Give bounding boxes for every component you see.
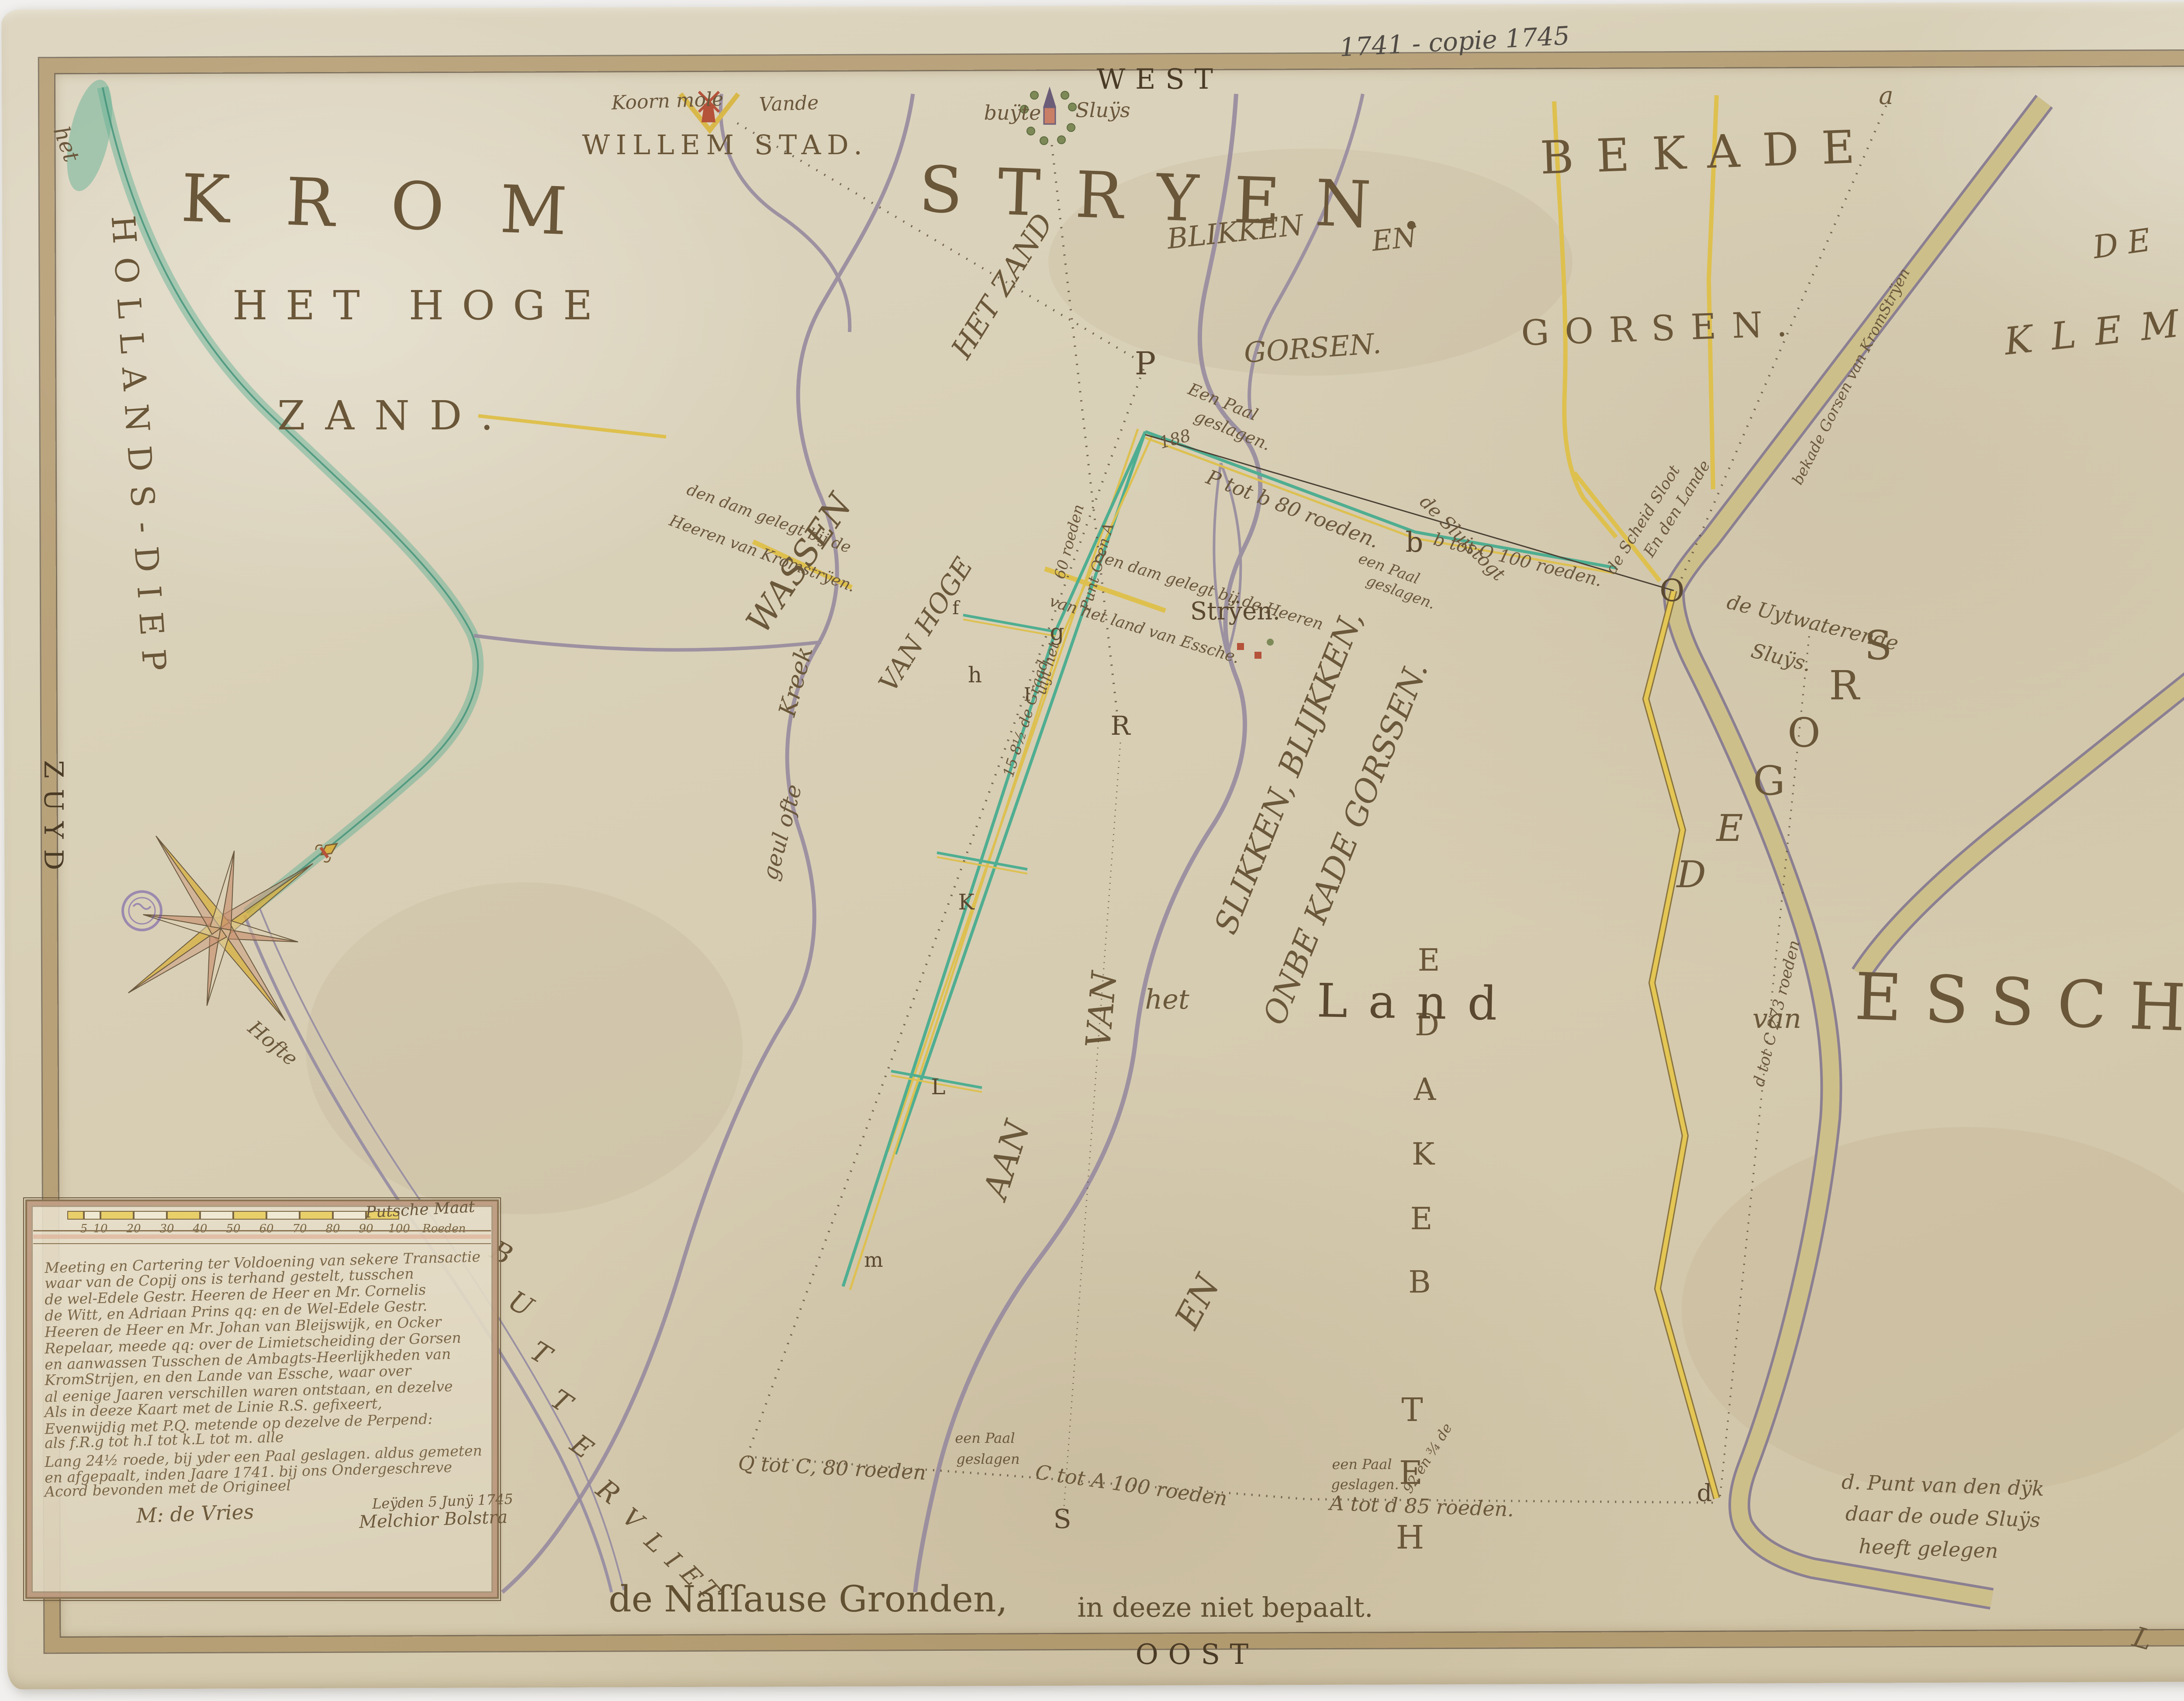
- map-label: U: [504, 1286, 537, 1321]
- map-label: ONBE KADE GORSSEN.: [1258, 657, 1433, 1029]
- map-label: in deeze niet bepaalt.: [1077, 1594, 1373, 1621]
- map-label: HOLLANDS-DIEP: [107, 214, 172, 685]
- map-label: Sluÿs.: [1749, 640, 1813, 675]
- map-label: EN: [1170, 1269, 1226, 1334]
- scale-bar-segment: [200, 1211, 233, 1220]
- map-label: ESSCHE.: [1854, 964, 2184, 1045]
- map-label: E: [1417, 945, 1440, 975]
- map-label: Hofte: [245, 1017, 301, 1069]
- map-label: A: [1414, 1074, 1436, 1105]
- map-label: DE: [2091, 223, 2162, 263]
- map-label: geul ofte: [759, 782, 805, 882]
- map-label: GORSEN.: [1243, 330, 1382, 367]
- map-label: een Paal: [955, 1431, 1015, 1445]
- map-label: T: [546, 1385, 577, 1418]
- map-label: Koorn mole: [611, 90, 724, 113]
- map-label: HET HOGE: [232, 286, 611, 326]
- scale-tick-label: 70: [292, 1222, 307, 1235]
- map-label: I: [661, 1548, 685, 1573]
- scale-tick-label: 40: [193, 1222, 207, 1235]
- map-label: R: [592, 1475, 625, 1509]
- map-label: R: [1829, 666, 1859, 706]
- scale-tick-label: 5: [80, 1222, 88, 1235]
- scale-bar-segment: [84, 1211, 100, 1220]
- map-label: b tot O 100 roeden.: [1432, 531, 1604, 590]
- map-label: KROM: [180, 166, 624, 246]
- map-label: KLEM.: [2003, 300, 2184, 360]
- map-label: 60 roeden: [1052, 503, 1086, 581]
- map-label: EN: [1371, 223, 1418, 256]
- map-label: L: [640, 1528, 668, 1557]
- map-label: VAN HOGE: [875, 553, 978, 696]
- map-label: de Naſſause Gronden,: [608, 1582, 1008, 1618]
- scale-tick-label: 20: [126, 1222, 141, 1235]
- map-label: Vande: [759, 93, 819, 115]
- map-label: Q tot C, 80 roeden: [738, 1453, 927, 1483]
- map-label: g: [1050, 621, 1064, 644]
- map-label: WEST: [1097, 66, 1223, 93]
- map-label: Land: [1317, 978, 1518, 1027]
- map-label: ZAND.: [277, 396, 514, 436]
- scale-title: Putsche Maat: [365, 1199, 475, 1220]
- map-label: h: [968, 664, 982, 686]
- map-label: K: [958, 891, 974, 913]
- scale-tick-label: 60: [259, 1222, 273, 1235]
- map-label: A tot d 85 roeden.: [1329, 1493, 1514, 1520]
- map-label: S: [1053, 1506, 1071, 1532]
- scale-bar-segment: [233, 1211, 266, 1220]
- map-label: E: [566, 1430, 598, 1464]
- map-label: d. Punt van den dÿk: [1841, 1472, 2044, 1499]
- map-label: L: [931, 1076, 945, 1098]
- map-label: L: [2130, 1623, 2155, 1655]
- map-label: a: [1879, 84, 1893, 108]
- map-label: T: [526, 1337, 556, 1369]
- map-label: 1741 - copie 1745: [1339, 23, 1570, 60]
- map-label: bekade Gorsen van KromStrÿen: [1790, 266, 1912, 487]
- map-label: f: [952, 599, 959, 617]
- map-label: BEKADE: [1539, 124, 1878, 181]
- map-label: d: [1697, 1481, 1712, 1505]
- map-label: WILLEM STAD.: [582, 131, 868, 159]
- cartouche-cornice: [33, 1234, 491, 1239]
- map-label: daar de oude Sluÿs: [1845, 1503, 2041, 1530]
- map-label: O: [1659, 575, 1684, 606]
- scale-bar-segment: [67, 1211, 84, 1220]
- map-label: heeft gelegen: [1859, 1536, 1999, 1561]
- scale-tick-label: 50: [226, 1222, 240, 1235]
- map-label: G: [1753, 761, 1785, 801]
- scale-tick-label: 100: [388, 1222, 410, 1235]
- map-label: P tot b 80 roeden.: [1204, 467, 1382, 551]
- map-label: het: [50, 124, 83, 165]
- map-label: buÿte: [984, 103, 1041, 123]
- cartouche-cornice: [33, 1243, 491, 1244]
- scale-bar-segment: [100, 1211, 134, 1220]
- map-label: B: [1408, 1267, 1431, 1297]
- scale-bar-segment: [266, 1211, 300, 1220]
- scale-tick-label: 10: [93, 1222, 107, 1235]
- scale-tick-label: 80: [325, 1222, 340, 1235]
- map-label: C tot A 100 roeden: [1034, 1462, 1229, 1508]
- map-label: Kreek: [775, 644, 816, 719]
- map-label: O: [1787, 713, 1820, 753]
- signature-de-vries: M: de Vries: [136, 1500, 254, 1527]
- map-label: H: [1396, 1521, 1424, 1554]
- map-label: OOST: [1135, 1641, 1258, 1669]
- map-label: HET ZAND: [947, 209, 1058, 363]
- map-label: 15 8½ de Graad.: [1001, 654, 1052, 779]
- map-label: Sluÿs: [1075, 100, 1130, 120]
- scale-unit: Roeden: [422, 1222, 466, 1235]
- map-label: geslagen.: [1331, 1477, 1399, 1491]
- map-label: D: [1676, 856, 1706, 893]
- map-label: VAN: [1081, 970, 1122, 1050]
- scale-tick-label: 30: [159, 1222, 174, 1235]
- map-label: b: [1406, 529, 1424, 557]
- map-label: ZUYD: [40, 760, 66, 881]
- cartouche-cornice: [33, 1230, 491, 1231]
- map-label: m: [864, 1250, 883, 1270]
- map-label: E: [1716, 810, 1743, 847]
- map-label: geslagen: [956, 1452, 1019, 1466]
- map-label: GORSEN.: [1521, 306, 1804, 351]
- scale-bar-segment: [300, 1211, 333, 1220]
- map-label: AAN: [978, 1117, 1035, 1203]
- scale-tick-label: 90: [359, 1222, 373, 1235]
- map-label: R: [1110, 713, 1130, 739]
- map-label: het: [1145, 986, 1189, 1013]
- map-label: E: [1410, 1203, 1432, 1234]
- map-label: P: [1135, 348, 1156, 379]
- map-label: T: [1401, 1394, 1423, 1426]
- cartouche: 5102030405060708090100 Putsche Maat Roed…: [25, 1200, 499, 1599]
- scale-bar-segment: [333, 1211, 366, 1220]
- scale-bar-segment: [167, 1211, 200, 1220]
- map-label: een Paal: [1332, 1457, 1392, 1471]
- map-label: 188: [1158, 427, 1192, 451]
- scale-bar-segment: [134, 1211, 167, 1220]
- map-label: V: [618, 1504, 647, 1535]
- map-label: K: [1412, 1139, 1434, 1169]
